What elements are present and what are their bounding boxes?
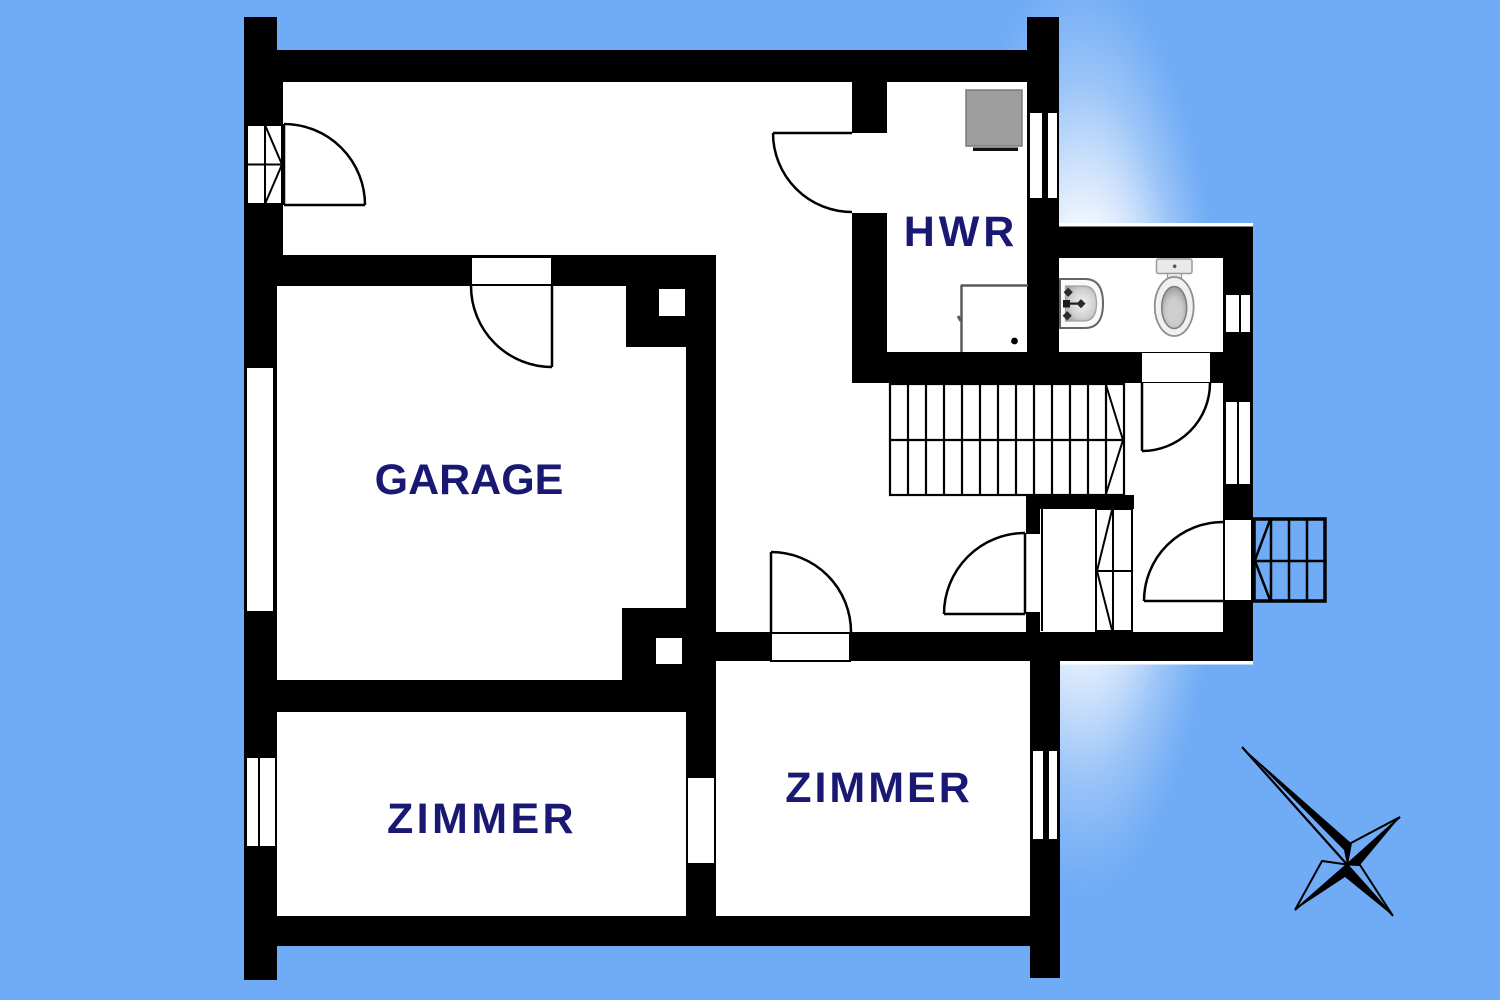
svg-text:ZIMMER: ZIMMER bbox=[387, 795, 577, 843]
svg-text:HWR: HWR bbox=[904, 208, 1018, 256]
svg-text:ZIMMER: ZIMMER bbox=[785, 764, 973, 812]
svg-text:GARAGE: GARAGE bbox=[375, 456, 564, 504]
